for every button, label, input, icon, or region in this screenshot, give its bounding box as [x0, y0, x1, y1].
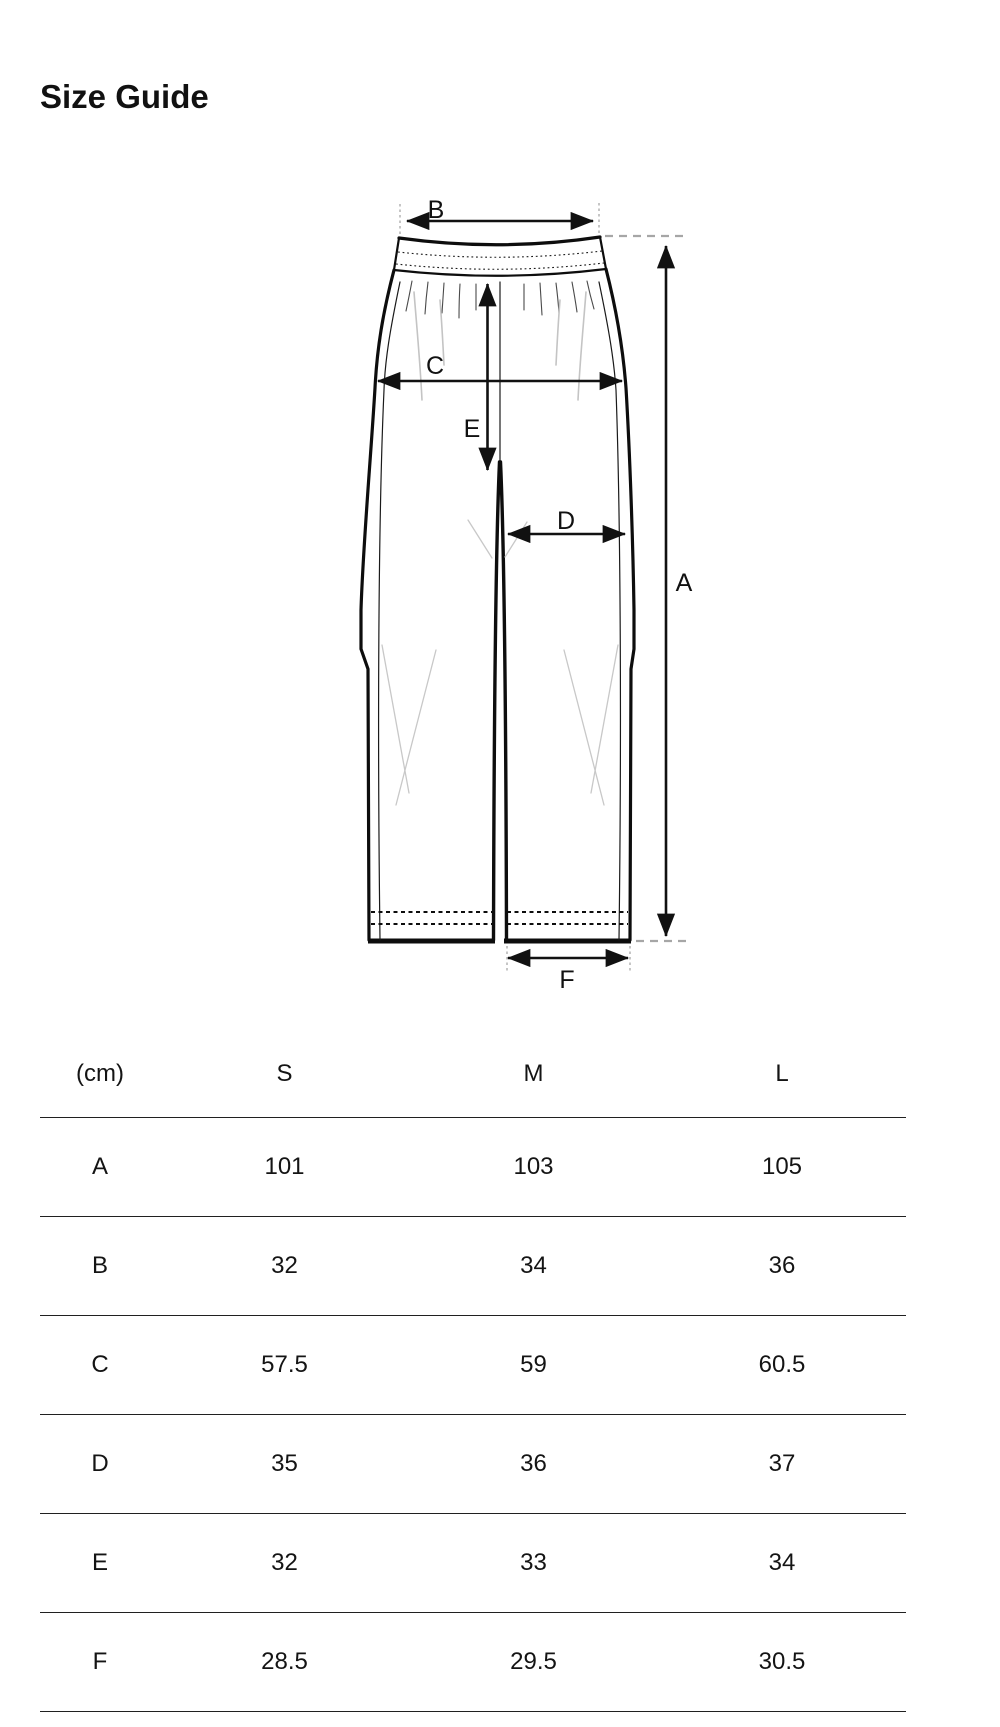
table-cell: 103	[409, 1153, 658, 1181]
table-row-e: E 32 33 34	[40, 1514, 906, 1613]
fabric-creases	[382, 520, 618, 805]
waistband	[394, 237, 606, 276]
size-table: (cm) S M L A 101 103 105 B 32 34 36 C 57…	[40, 1030, 906, 1712]
table-row-c: C 57.5 59 60.5	[40, 1316, 906, 1415]
unit-header: (cm)	[40, 1060, 160, 1088]
row-label: D	[40, 1450, 160, 1478]
table-cell: 35	[160, 1450, 409, 1478]
row-label: A	[40, 1153, 160, 1181]
table-cell: 101	[160, 1153, 409, 1181]
table-row-b: B 32 34 36	[40, 1217, 906, 1316]
pants-outline	[361, 269, 634, 941]
dim-label-e: E	[464, 415, 481, 443]
table-cell: 36	[409, 1450, 658, 1478]
table-cell: 30.5	[658, 1648, 906, 1676]
table-row-f: F 28.5 29.5 30.5	[40, 1613, 906, 1712]
size-guide-page: Size Guide	[0, 0, 1000, 1727]
table-cell: 105	[658, 1153, 906, 1181]
dimension-arrows	[378, 221, 666, 958]
table-cell: 60.5	[658, 1351, 906, 1379]
col-header-m: M	[409, 1060, 658, 1088]
table-cell: 29.5	[409, 1648, 658, 1676]
dim-label-d: D	[557, 507, 575, 535]
row-label: C	[40, 1351, 160, 1379]
pants-diagram: B C E D A F	[0, 0, 1000, 1000]
dim-label-c: C	[426, 352, 444, 380]
table-cell: 32	[160, 1252, 409, 1280]
table-cell: 36	[658, 1252, 906, 1280]
row-label: E	[40, 1549, 160, 1577]
table-cell: 33	[409, 1549, 658, 1577]
col-header-s: S	[160, 1060, 409, 1088]
table-cell: 28.5	[160, 1648, 409, 1676]
guide-lines	[400, 203, 688, 972]
table-cell: 57.5	[160, 1351, 409, 1379]
table-cell: 34	[409, 1252, 658, 1280]
table-cell: 37	[658, 1450, 906, 1478]
dim-label-a: A	[676, 569, 693, 597]
dim-label-f: F	[559, 966, 574, 994]
table-row-d: D 35 36 37	[40, 1415, 906, 1514]
row-label: F	[40, 1648, 160, 1676]
size-table-header: (cm) S M L	[40, 1030, 906, 1118]
hem-stitching	[371, 912, 628, 924]
table-cell: 34	[658, 1549, 906, 1577]
col-header-l: L	[658, 1060, 906, 1088]
table-row-a: A 101 103 105	[40, 1118, 906, 1217]
row-label: B	[40, 1252, 160, 1280]
table-cell: 59	[409, 1351, 658, 1379]
table-cell: 32	[160, 1549, 409, 1577]
dim-label-b: B	[428, 196, 445, 224]
